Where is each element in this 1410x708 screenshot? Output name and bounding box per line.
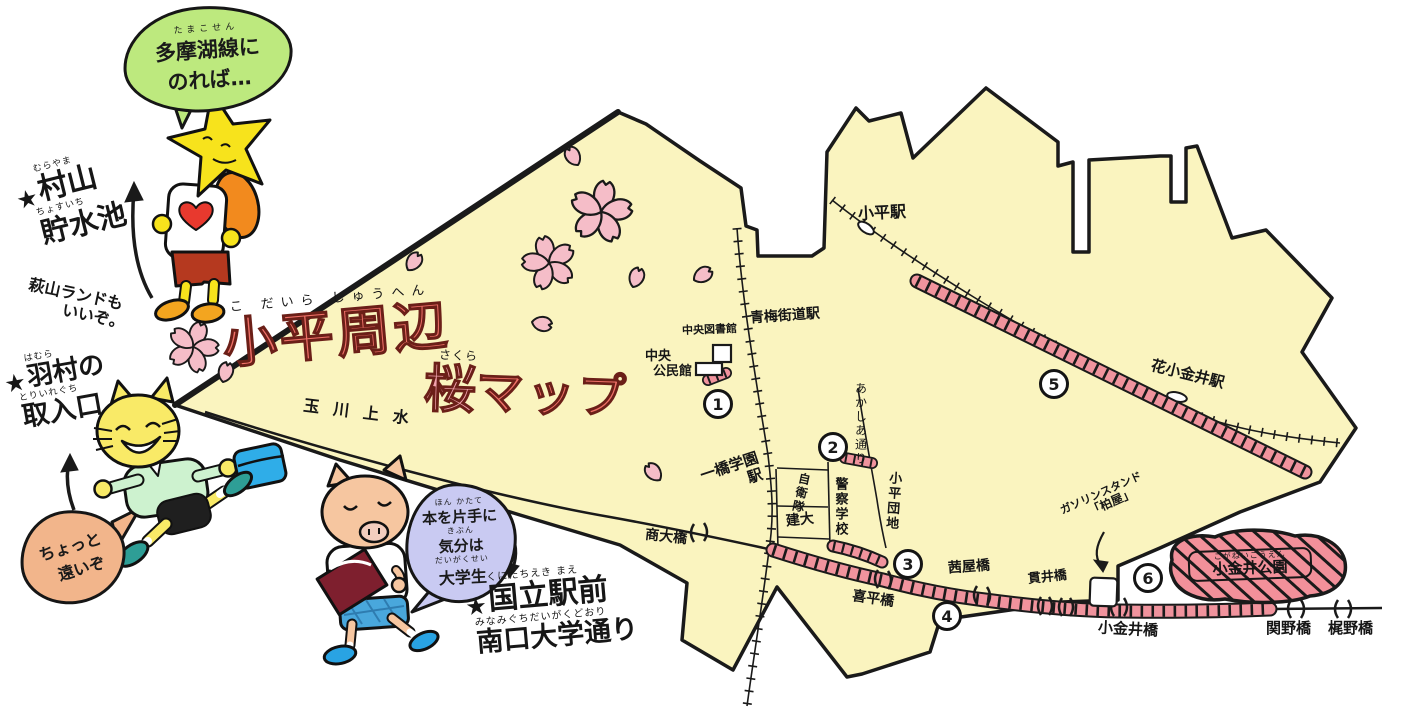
star-icon: ★ <box>464 593 488 619</box>
label-kodaira-danchi: 小平団地 <box>882 471 901 536</box>
label-chuo-kominkan: 中央 公民館 <box>645 350 692 379</box>
cat-arm <box>198 470 222 476</box>
pig-snout <box>360 522 388 542</box>
kunitachi-annotation: ★ くにたちえき まえ 国立駅前 みなみぐちだいがくどおり 南口大学通り <box>463 561 640 659</box>
gas-station-building <box>1090 578 1118 607</box>
spot-marker-5: 5 <box>1039 369 1069 399</box>
label-keisatsu-gakko: 警察学校 <box>832 477 847 541</box>
library-building <box>713 345 731 362</box>
label-chuo-kominkan-1: 中央 <box>645 350 692 365</box>
title-map-word: マップ <box>475 364 630 425</box>
spot-marker-1: 1 <box>703 389 733 419</box>
label-kendai: 建大 <box>785 512 814 531</box>
spot-marker-2: 2 <box>818 432 848 462</box>
label-koganei-bashi: 小金井橋 <box>1098 619 1159 639</box>
label-akashia-dori: あかしあ通り <box>853 382 866 492</box>
pig-shoe <box>323 643 358 666</box>
character-star-boy <box>153 92 270 324</box>
label-koganei-park: こがねいこうえん 小金井公園 <box>1188 547 1313 582</box>
leg <box>213 284 214 300</box>
label-koganei-park-name: 小金井公園 <box>1194 558 1307 579</box>
label-sekino-bashi: 関野橋 <box>1266 620 1311 637</box>
spot-marker-6: 6 <box>1133 563 1163 593</box>
sakura-flower <box>159 314 227 381</box>
label-kajino-bashi: 梶野橋 <box>1328 620 1373 637</box>
kominkan-building <box>696 363 722 375</box>
kodaira-sakura-map: たまこせん 多摩湖線に のれば… ちょっと 遠いぞ ほん かたて 本を片手に き… <box>0 0 1410 708</box>
shorts <box>172 252 230 286</box>
tamako-line2: のれば… <box>166 61 252 97</box>
spot-marker-3: 3 <box>893 549 923 579</box>
label-kodaira-station: 小平駅 <box>858 203 907 223</box>
cat-hand <box>95 481 112 498</box>
left-fist <box>153 215 171 233</box>
sock <box>410 632 414 635</box>
pig-hand <box>392 578 406 592</box>
arrow-to-murayama <box>133 190 152 298</box>
title-sakura-char: 桜 <box>423 359 477 421</box>
label-chuo-kominkan-2: 公民館 <box>645 365 692 380</box>
label-chuo-library: 中央図書館 <box>682 323 737 337</box>
spot-marker-4: 4 <box>932 601 962 631</box>
map-title-line2: さくら 桜マップ <box>423 348 630 425</box>
label-akaneya-bashi: 茜屋橋 <box>948 559 991 578</box>
right-fist <box>222 229 240 247</box>
sh oe <box>153 296 191 324</box>
